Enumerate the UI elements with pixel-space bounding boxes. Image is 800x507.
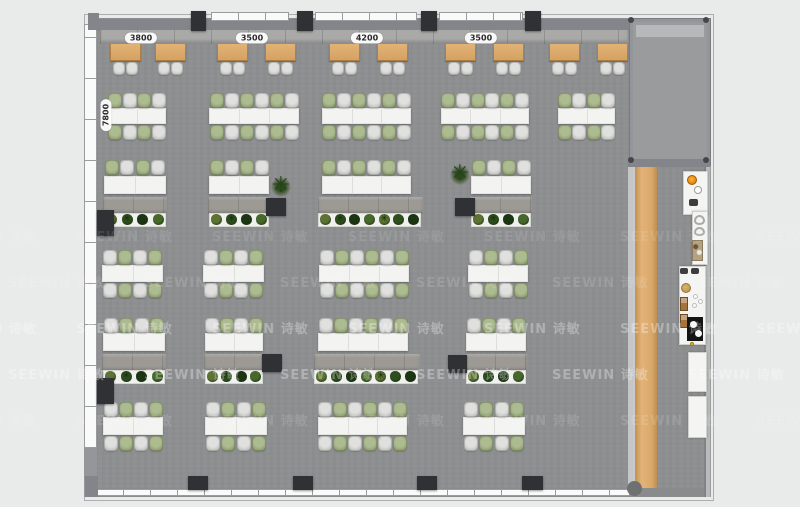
- table-seam: [379, 266, 380, 281]
- plant: ✳: [226, 214, 237, 225]
- chair: [136, 160, 150, 175]
- cafe-table: [110, 43, 141, 61]
- chair: [380, 283, 394, 298]
- chair: [104, 436, 118, 451]
- plant: [405, 371, 416, 382]
- chair: [319, 318, 333, 333]
- chair: [572, 93, 586, 108]
- chair: [320, 250, 334, 265]
- plant-icon: ✳: [123, 214, 131, 224]
- chair: [363, 436, 377, 451]
- chair: [249, 250, 263, 265]
- table-seam: [501, 177, 502, 193]
- chair: [500, 93, 514, 108]
- chair: [322, 125, 336, 140]
- chair: [152, 93, 166, 108]
- plant: [408, 214, 419, 225]
- chair: [332, 62, 344, 75]
- floor-plan-canvas: ✳✳✳✳✳✳✳✳✳✳✳✳SEEWIN 诗敏SEEWIN 诗敏SEEWIN 诗敏S…: [0, 0, 800, 507]
- chair: [471, 93, 485, 108]
- chair: [380, 250, 394, 265]
- structural-column: [455, 198, 475, 216]
- corner-post: [88, 13, 99, 30]
- watermark: SEEWIN 诗敏: [620, 318, 717, 337]
- chair: [397, 93, 411, 108]
- chair: [472, 160, 486, 175]
- cafe-table: [377, 43, 408, 61]
- watermark: SEEWIN 诗敏: [688, 364, 785, 383]
- chair: [118, 283, 132, 298]
- chair: [345, 62, 357, 75]
- chair: [461, 62, 473, 75]
- chair: [510, 436, 524, 451]
- watermark: SEEWIN 诗敏: [620, 226, 717, 245]
- chair: [225, 160, 239, 175]
- tree-icon: ✳: [272, 175, 290, 197]
- chair: [613, 62, 625, 75]
- vent-fan: [680, 268, 688, 274]
- table-seam: [135, 177, 136, 193]
- table-seam: [352, 177, 353, 193]
- chair: [397, 125, 411, 140]
- cafe-table: [265, 43, 296, 61]
- cafe-table: [549, 43, 580, 61]
- stove-burner: [687, 175, 697, 185]
- plant: [241, 214, 252, 225]
- plant-icon: ✳: [122, 371, 130, 381]
- planter-bench: [318, 197, 423, 214]
- watermark: SEEWIN 诗敏: [416, 272, 513, 291]
- small-dish: [693, 294, 698, 299]
- chair: [318, 402, 332, 417]
- chair: [335, 250, 349, 265]
- chair: [225, 93, 239, 108]
- chair: [337, 160, 351, 175]
- chair: [281, 62, 293, 75]
- chair: [285, 93, 299, 108]
- dimension-label: 4200: [351, 33, 383, 44]
- chair: [240, 160, 254, 175]
- watermark: SEEWIN 诗敏: [756, 318, 800, 337]
- tree-plan-symbol: ✳: [271, 177, 291, 197]
- watermark: SEEWIN 诗敏: [0, 226, 37, 245]
- plant: [503, 214, 514, 225]
- chair: [485, 125, 499, 140]
- chair: [382, 160, 396, 175]
- chair: [206, 436, 220, 451]
- chair: [126, 62, 138, 75]
- watermark: SEEWIN 诗敏: [484, 318, 581, 337]
- chair: [233, 62, 245, 75]
- chair: [352, 160, 366, 175]
- plant: ✳: [121, 371, 132, 382]
- chair: [495, 436, 509, 451]
- watermark: SEEWIN 诗敏: [688, 272, 785, 291]
- table-seam: [381, 109, 382, 123]
- chair: [137, 93, 151, 108]
- chair: [469, 250, 483, 265]
- dimension-label: 3500: [465, 33, 497, 44]
- chair: [558, 93, 572, 108]
- chair: [441, 125, 455, 140]
- warning-dot: [690, 342, 694, 346]
- chair: [587, 93, 601, 108]
- chair: [151, 160, 165, 175]
- plant: [513, 371, 524, 382]
- chair: [397, 160, 411, 175]
- watermark: SEEWIN 诗敏: [756, 226, 800, 245]
- appliance-box: [680, 297, 688, 311]
- watermark: SEEWIN 诗敏: [0, 318, 37, 337]
- plant: ✳: [335, 214, 346, 225]
- plant: ✳: [122, 214, 133, 225]
- chair: [348, 436, 362, 451]
- chair: [120, 160, 134, 175]
- chair: [380, 62, 392, 75]
- chair: [119, 436, 133, 451]
- dimension-label: 3800: [125, 33, 157, 44]
- table-seam: [137, 109, 138, 123]
- chair: [378, 436, 392, 451]
- structural-column: [421, 11, 437, 31]
- chair: [210, 93, 224, 108]
- watermark: SEEWIN 诗敏: [76, 410, 173, 429]
- chair: [471, 125, 485, 140]
- chair: [220, 62, 232, 75]
- watermark: SEEWIN 诗敏: [8, 364, 105, 383]
- plant-icon: ✳: [380, 214, 388, 224]
- window: [315, 12, 417, 21]
- chair: [234, 250, 248, 265]
- wall-joint: [703, 157, 709, 163]
- chair: [103, 250, 117, 265]
- planter-bench: [470, 197, 532, 214]
- structural-column: [262, 354, 282, 372]
- chair: [171, 62, 183, 75]
- chair: [333, 402, 347, 417]
- watermark: SEEWIN 诗敏: [144, 272, 241, 291]
- watermark: SEEWIN 诗敏: [8, 272, 105, 291]
- cafe-table: [217, 43, 248, 61]
- chair: [393, 436, 407, 451]
- window: [211, 12, 289, 21]
- chair: [502, 160, 516, 175]
- chair: [350, 250, 364, 265]
- watermark: SEEWIN 诗敏: [484, 226, 581, 245]
- watermark: SEEWIN 诗敏: [212, 226, 309, 245]
- chair: [249, 283, 263, 298]
- plant: [211, 214, 222, 225]
- chair: [484, 250, 498, 265]
- table-seam: [381, 177, 382, 193]
- chair: [221, 436, 235, 451]
- plant: [153, 214, 164, 225]
- watermark: SEEWIN 诗敏: [348, 410, 445, 429]
- chair: [565, 62, 577, 75]
- cafe-table: [155, 43, 186, 61]
- chair: [395, 250, 409, 265]
- chair: [322, 160, 336, 175]
- chair: [210, 125, 224, 140]
- structural-column: [293, 476, 313, 490]
- chair: [367, 160, 381, 175]
- sink-basin: [694, 215, 705, 225]
- chair: [337, 93, 351, 108]
- room-whiteboard: [636, 25, 704, 37]
- plant-icon: ✳: [336, 214, 344, 224]
- chair: [352, 93, 366, 108]
- plant: [518, 214, 529, 225]
- wall-joint: [703, 17, 709, 23]
- chair: [395, 283, 409, 298]
- plant: [364, 214, 375, 225]
- chair: [479, 436, 493, 451]
- chair: [367, 93, 381, 108]
- chair: [601, 125, 615, 140]
- chair: [113, 62, 125, 75]
- cafe-table: [445, 43, 476, 61]
- chair: [255, 160, 269, 175]
- chair: [252, 436, 266, 451]
- chair: [270, 93, 284, 108]
- chair: [367, 125, 381, 140]
- chair: [393, 62, 405, 75]
- table-seam: [587, 109, 588, 123]
- hob-ring: [694, 186, 702, 194]
- plant: [320, 214, 331, 225]
- table-seam: [133, 266, 134, 281]
- chair: [500, 125, 514, 140]
- plant: ✳: [379, 214, 390, 225]
- chair: [572, 125, 586, 140]
- chair: [158, 62, 170, 75]
- chair: [322, 93, 336, 108]
- chair: [334, 318, 348, 333]
- watermark: SEEWIN 诗敏: [76, 318, 173, 337]
- plant-icon: ✳: [489, 214, 497, 224]
- plant: [390, 371, 401, 382]
- tree-plan-symbol: ✳: [450, 165, 470, 185]
- small-dish: [692, 303, 697, 308]
- wall-joint: [628, 157, 634, 163]
- watermark: SEEWIN 诗敏: [416, 364, 513, 383]
- chair: [240, 125, 254, 140]
- chair: [514, 250, 528, 265]
- planter-bench: [208, 197, 270, 214]
- chair: [496, 62, 508, 75]
- chair: [552, 62, 564, 75]
- plant: ✳: [488, 214, 499, 225]
- small-dish: [698, 299, 703, 304]
- structural-column: [627, 481, 642, 496]
- watermark: SEEWIN 诗敏: [280, 364, 377, 383]
- chair: [587, 125, 601, 140]
- chair: [240, 93, 254, 108]
- dimension-label: 3500: [236, 33, 268, 44]
- chair: [118, 250, 132, 265]
- structural-column: [266, 198, 286, 216]
- page-background: ✳✳✳✳✳✳✳✳✳✳✳✳SEEWIN 诗敏SEEWIN 诗敏SEEWIN 诗敏S…: [0, 0, 800, 507]
- chair: [515, 93, 529, 108]
- chair: [333, 436, 347, 451]
- cafe-table: [329, 43, 360, 61]
- chair: [318, 436, 332, 451]
- structural-column: [297, 11, 313, 31]
- chair: [133, 250, 147, 265]
- corner-post: [85, 476, 98, 497]
- watermark: SEEWIN 诗敏: [76, 226, 173, 245]
- chair: [204, 250, 218, 265]
- chair: [123, 93, 137, 108]
- dimension-label: 7800: [101, 99, 112, 131]
- chair: [558, 125, 572, 140]
- chair: [382, 93, 396, 108]
- watermark: SEEWIN 诗敏: [280, 272, 377, 291]
- dining-table: [322, 108, 411, 124]
- table-seam: [239, 109, 240, 123]
- chair: [448, 62, 460, 75]
- speaker-icon: [689, 199, 698, 206]
- chair: [487, 160, 501, 175]
- structural-column: [522, 476, 543, 490]
- chair: [268, 62, 280, 75]
- chair: [225, 125, 239, 140]
- chair: [464, 436, 478, 451]
- watermark: SEEWIN 诗敏: [552, 364, 649, 383]
- table-seam: [269, 109, 270, 123]
- chair: [517, 160, 531, 175]
- chair: [219, 250, 233, 265]
- chair: [210, 160, 224, 175]
- chair: [456, 93, 470, 108]
- watermark: SEEWIN 诗敏: [348, 318, 445, 337]
- structural-column: [417, 476, 437, 490]
- cafe-table: [597, 43, 628, 61]
- chair: [123, 125, 137, 140]
- chair: [601, 93, 615, 108]
- chair: [467, 318, 481, 333]
- meeting-room: [630, 19, 710, 165]
- chair: [456, 125, 470, 140]
- dining-table: [209, 108, 299, 124]
- table-seam: [500, 109, 501, 123]
- chair: [152, 125, 166, 140]
- chair: [382, 125, 396, 140]
- watermark: SEEWIN 诗敏: [620, 410, 717, 429]
- chair: [255, 93, 269, 108]
- dining-table: [322, 176, 411, 194]
- chair: [464, 402, 478, 417]
- chair: [105, 160, 119, 175]
- watermark: SEEWIN 诗敏: [212, 410, 309, 429]
- window: [96, 489, 630, 496]
- chair: [255, 125, 269, 140]
- chair: [485, 93, 499, 108]
- chair: [337, 125, 351, 140]
- chair: [270, 125, 284, 140]
- room-wall: [628, 159, 710, 167]
- plant-icon: ✳: [377, 371, 385, 381]
- chair: [149, 436, 163, 451]
- structural-column: [525, 11, 541, 31]
- wall-joint: [628, 17, 634, 23]
- watermark: SEEWIN 诗敏: [348, 226, 445, 245]
- tree-icon: ✳: [451, 163, 469, 185]
- watermark: SEEWIN 诗敏: [756, 410, 800, 429]
- dining-table: [441, 108, 529, 124]
- chair: [285, 125, 299, 140]
- chair: [365, 250, 379, 265]
- watermark: SEEWIN 诗敏: [212, 318, 309, 337]
- structural-column: [188, 476, 208, 490]
- watermark: SEEWIN 诗敏: [484, 410, 581, 429]
- watermark: SEEWIN 诗敏: [552, 272, 649, 291]
- chair: [441, 93, 455, 108]
- chair: [237, 436, 251, 451]
- chair: [499, 250, 513, 265]
- table-seam: [352, 109, 353, 123]
- chair: [509, 62, 521, 75]
- chair: [515, 125, 529, 140]
- chair: [134, 436, 148, 451]
- window: [439, 12, 523, 21]
- cafe-table: [493, 43, 524, 61]
- table-seam: [470, 109, 471, 123]
- chair: [514, 283, 528, 298]
- chair: [137, 125, 151, 140]
- plant-icon: ✳: [227, 214, 235, 224]
- table-seam: [239, 177, 240, 193]
- chair: [352, 125, 366, 140]
- watermark: SEEWIN 诗敏: [144, 364, 241, 383]
- chair: [600, 62, 612, 75]
- structural-column: [191, 11, 206, 31]
- watermark: SEEWIN 诗敏: [0, 410, 37, 429]
- chair: [148, 250, 162, 265]
